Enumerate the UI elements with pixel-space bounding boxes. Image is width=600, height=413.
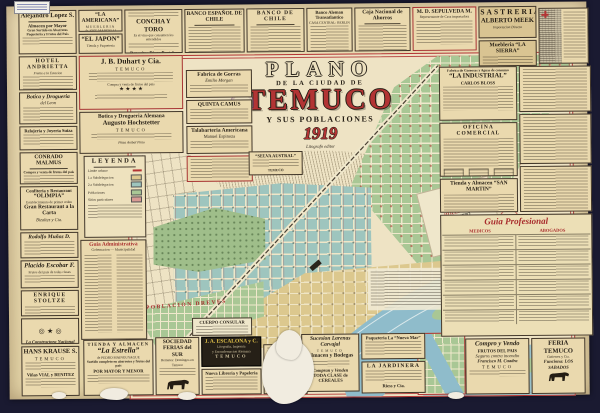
illegible-text-lines	[190, 84, 248, 93]
legend-label: Limite urbano	[88, 169, 108, 173]
illegible-text-lines	[23, 134, 73, 146]
ad-relojeria-suiza: Relojeria y Joyeria Suiza	[19, 126, 77, 151]
legend-label: Sitios particulares	[88, 198, 113, 202]
illegible-text-lines	[358, 25, 406, 51]
illegible-text-lines	[25, 362, 75, 371]
box-subtitle: Gobernacion — Municipalidad	[82, 248, 144, 253]
ad-title: Paqueteria La “Nueva Mar”	[363, 335, 423, 341]
map-title-block: PLANO DE LA CIUDAD DE TEMUCO Y SUS POBLA…	[224, 58, 417, 152]
illegible-text-lines	[253, 159, 299, 167]
ad-olimpia: Confiteria y Restaurant “OLIMPIA” Establ…	[20, 186, 78, 231]
directory-cell	[443, 279, 517, 295]
ad-line: TEMUCO	[81, 127, 181, 133]
ad-line: Frutos del pais de todas clases	[23, 270, 77, 275]
ad-hans-krause: HANS KRAUSE S. TEMUCO Viñas VIAL y BENIT…	[21, 346, 79, 397]
ad-title: ENRIQUE STOLTZE	[23, 292, 77, 305]
illegible-text-lines	[494, 168, 514, 177]
ad-title: “SELVA AUSTRAL”	[251, 153, 301, 159]
ad-sepulveda: M. D. SEPULVEDA M. Representante de Casa…	[412, 6, 476, 51]
ad-line: Funciona: LOS SABADOS	[533, 359, 583, 370]
directory-grid	[442, 233, 591, 324]
illegible-text-lines	[416, 20, 472, 44]
ad-alejandro-lopez: Alejandro Lopez S. Almacen por Mayor Gra…	[18, 10, 76, 55]
ad-line: POR MAYOR Y MENOR	[85, 368, 151, 374]
ad-banco-espanol: BANCO ESPAÑOL DE CHILE	[184, 8, 244, 53]
ad-line: Es el vino que consumen los entendidos	[127, 33, 181, 42]
illegible-text-lines	[159, 368, 195, 376]
ad-line: Compra y venta de frutos del pais	[22, 170, 76, 175]
title-subtitle: Litografo editor	[225, 143, 417, 150]
ad-concha-y-toro: CONCHA Y TORO Es el vino que consumen lo…	[124, 9, 182, 54]
ad-title2: FERIAS del SUR	[157, 345, 197, 358]
ad-oficina-comercial: OFICINA COMERCIAL	[439, 122, 517, 177]
star-row-icon: ★ ★ ★ ★	[81, 86, 181, 93]
ad-line: CASA CENTRAL: BERLIN	[308, 20, 350, 24]
sticker-text-lines	[17, 4, 47, 11]
ad-title: FERIA TEMUCO	[533, 340, 583, 356]
ad-title2: ALBERTO MEEK	[480, 17, 534, 25]
illegible-text-lines	[188, 26, 240, 53]
ad-title: SASTRERIA	[480, 8, 534, 17]
ad-title: Banco Aleman Transatlantico	[308, 10, 350, 21]
illegible-text-lines	[563, 11, 586, 59]
bull-icon	[165, 377, 191, 390]
ad-caja-nacional-ahorros: Caja Nacional de Ahorros	[354, 7, 410, 51]
illegible-text-lines	[250, 26, 300, 53]
ad-feria-temuco: FERIA TEMUCO Gutierrez y Cia. Funciona: …	[531, 337, 585, 393]
ad-quinta-camus: QUINTA CAMUS	[186, 99, 252, 124]
directory-cell	[443, 309, 517, 325]
guia-administrativa-box: Guia Administrativa Gobernacion — Munici…	[80, 239, 147, 340]
illegible-text-lines	[25, 275, 75, 283]
ad-title: Nueva Libreria y Papeleria	[203, 370, 259, 376]
ad-right-strip-2	[519, 113, 591, 164]
ad-imprenta-alemana: J. A. ESCALONA y C. Litografia, Imprenta…	[201, 336, 261, 367]
ad-rodolfo-munoz: Rodolfo Muñoz D.	[20, 232, 78, 259]
illegible-text-lines	[23, 76, 73, 90]
directory-cell	[517, 293, 591, 309]
ad-title: CONRADO MALMUS	[22, 154, 76, 167]
paper-tear	[100, 388, 128, 400]
illegible-text-lines	[84, 254, 111, 332]
cuerpo-consular-box: CUERPO CONSULAR	[192, 317, 252, 336]
legend-row: Limite urbano	[88, 169, 142, 174]
title-year: 1919	[224, 123, 416, 145]
paper-tear	[178, 392, 196, 400]
ad-line: Paqueteria y Frutos del Pais	[21, 32, 75, 37]
ad-hotel-andrietta: HOTEL ANDRIETTA Frente a la Estacion	[19, 56, 77, 91]
ad-line: TEMUCO	[203, 353, 259, 359]
red-cross-icon	[541, 11, 548, 18]
ad-la-jardinera: LA JARDINERA Riess y Cia.	[361, 361, 425, 394]
ad-title: “EL JAPON”	[81, 36, 121, 44]
ad-right-strip-3	[520, 165, 592, 212]
paper-tear	[52, 392, 66, 399]
legend-box: LEYENDA Limite urbano 1.a Subdelegacion …	[84, 155, 147, 238]
ad-la-industrial: Fabrica de Gaseosas y Aguas de consumo “…	[439, 66, 517, 121]
ad-title: Muebleria “LA SIERRA”	[481, 42, 535, 55]
ad-title: Compro y Vendo	[467, 340, 527, 348]
illegible-text-lines	[129, 43, 179, 49]
directory-cell	[516, 248, 590, 264]
illegible-text-lines	[444, 194, 514, 213]
ad-banco-aleman: Banco Aleman Transatlantico CASA CENTRAL…	[306, 8, 352, 52]
legend-row: 2.a Subdelegacion	[88, 182, 142, 188]
ad-line: Representante de Casa importadora	[414, 15, 474, 20]
legend-swatch-green	[131, 189, 142, 195]
ad-right-strip-1	[519, 65, 591, 112]
guia-profesional-box: Guia Profesional MEDICOS ABOGADOS	[440, 213, 593, 336]
ad-selva-austral: “SELVA AUSTRAL” TEMUCO	[249, 151, 303, 175]
ad-line: Frente a la Estacion	[21, 71, 75, 76]
ad-ferias-del-sur: SOCIEDAD FERIAS del SUR Remates: Domingo…	[155, 337, 200, 395]
ad-enrique-stoltze: ENRIQUE STOLTZE	[21, 290, 79, 317]
ad-title: HOTEL ANDRIETTA	[21, 58, 75, 71]
column-header-abogados: ABOGADOS	[517, 227, 589, 233]
ad-line: de JOSE MARCELLI	[80, 29, 120, 32]
ad-line: Viñas VIAL y BENITEZ	[23, 372, 77, 378]
illegible-text-lines	[95, 94, 167, 100]
illegible-text-lines	[190, 109, 248, 122]
ad-line: Manuel Espinoza	[188, 134, 250, 140]
ad-title: Relojeria y Joyeria Suiza	[21, 128, 75, 134]
ad-sastreria-meek: SASTRERIA ALBERTO MEEK Importacion Direc…	[478, 6, 536, 39]
ad-engraving	[538, 7, 588, 63]
illegible-text-lines	[88, 374, 150, 384]
ad-title: BANCO DE CHILE	[248, 10, 302, 23]
illegible-text-lines	[365, 341, 421, 355]
directory-cell	[517, 263, 591, 279]
ad-conrado-malmus: CONRADO MALMUS Compra y venta de frutos …	[20, 152, 78, 185]
illegible-text-lines	[524, 168, 588, 209]
ad-title: CONCHA Y TORO	[126, 18, 180, 34]
ad-title: “LA AMERICANA”	[80, 12, 120, 25]
illegible-text-lines	[523, 116, 587, 161]
illegible-text-lines	[25, 306, 75, 317]
directory-cell	[442, 249, 516, 265]
illegible-text-lines	[469, 168, 489, 176]
ad-line: Tienda y Paqueteria	[81, 43, 121, 47]
ad-line: Gran Restaurant a la Carta	[22, 204, 76, 217]
legend-label: 1.a Subdelegacion	[88, 175, 114, 179]
ad-title: Caja Nacional de Ahorros	[356, 9, 408, 22]
ad-la-americana: “LA AMERICANA” MUEBLERIA de JOSE MARCELL…	[78, 10, 122, 32]
illegible-text-lines	[128, 12, 178, 17]
legend-row: 1.a Subdelegacion	[88, 174, 142, 180]
illegible-text-lines	[311, 360, 349, 366]
ad-placido-escobar: Placido Escobar F. Frutos del pais de to…	[21, 260, 79, 289]
column-header-medicos: MEDICOS	[444, 228, 516, 234]
ad-title: La Constructora Nacional	[23, 339, 77, 345]
legend-row: Poblaciones	[88, 189, 142, 195]
ad-title: LA JARDINERA	[363, 363, 423, 370]
ad-title: HANS KRAUSE S.	[23, 348, 77, 356]
ad-title: Placido Escobar F.	[23, 262, 77, 270]
illegible-text-lines	[523, 68, 587, 109]
illegible-text-lines	[483, 56, 533, 67]
directory-cell	[517, 308, 591, 324]
ad-line: TEMUCO	[467, 364, 527, 370]
illegible-text-lines	[23, 107, 73, 121]
ad-fabrica-gorras: Fabrica de Gorras Emilio Morgan	[186, 69, 252, 98]
illegible-text-lines	[310, 25, 348, 51]
legend-label: 2.a Subdelegacion	[88, 183, 114, 187]
directory-cell	[443, 264, 517, 280]
ad-title: Tienda y Almacen “SAN MARTIN”	[442, 180, 516, 194]
ad-title: BANCO ESPAÑOL DE CHILE	[186, 10, 242, 23]
ad-line: TEMUCO	[81, 66, 181, 72]
ad-banco-de-chile: BANCO DE CHILE	[246, 8, 304, 53]
legend-swatch-teal	[131, 182, 142, 188]
ad-line: TEMUCO	[251, 168, 301, 173]
divider	[94, 166, 136, 167]
directory-cell	[517, 278, 591, 294]
illegible-text-lines	[116, 254, 143, 332]
ad-line: Importacion Directa	[480, 24, 534, 29]
illegible-text-lines	[206, 377, 258, 391]
illegible-text-lines	[89, 72, 173, 82]
ad-line: Emilio Morgan	[188, 78, 250, 84]
illegible-text-lines	[26, 378, 76, 387]
illegible-text-lines	[444, 169, 464, 177]
bull-icon	[546, 370, 570, 382]
ad-botica-leon: Botica y Drogueria del Leon	[19, 92, 77, 125]
ad-line: TEMUCO	[23, 356, 77, 362]
directory-cell	[443, 294, 517, 310]
illegible-text-lines	[24, 241, 74, 255]
ad-nueva-libreria: Nueva Libreria y Papeleria	[201, 368, 261, 395]
ad-line: Plaza Anibal Pinto	[81, 140, 181, 145]
ad-line: Bizaltez y Cia.	[22, 217, 76, 223]
legend-swatch-pink	[131, 197, 142, 203]
legend-label: Poblaciones	[88, 190, 105, 194]
ad-compro-y-vendo: Compro y Vendo FRUTOS DEL PAIS Seguros c…	[465, 338, 529, 395]
illegible-text-lines	[190, 140, 248, 149]
legend-swatch-red-line	[133, 170, 142, 172]
illegible-text-lines	[443, 86, 513, 111]
box-title: CUERPO CONSULAR	[194, 319, 250, 325]
paper-tear	[448, 392, 464, 399]
ad-el-japon: “EL JAPON” Tienda y Paqueteria	[79, 34, 123, 54]
illegible-text-lines	[191, 158, 249, 179]
illegible-text-lines	[196, 326, 248, 334]
illegible-text-lines	[88, 204, 142, 218]
directory-cell	[442, 234, 516, 250]
ad-line: Riess y Cia.	[364, 383, 424, 389]
title-plano: PLANO	[224, 58, 416, 81]
illegible-text-lines	[469, 370, 525, 376]
illegible-text-lines	[24, 175, 74, 184]
legend-swatch-yellow	[131, 174, 142, 180]
ad-duhart: J. B. Duhart y Cia. TEMUCO Compra y vent…	[79, 55, 183, 110]
ad-title: “LA INDUSTRIAL”	[441, 72, 515, 80]
ad-hochstetter: Botica y Drogueria Alemana Augusto Hochs…	[79, 111, 183, 154]
directory-cell	[516, 233, 590, 249]
legend-row: Sitios particulares	[88, 197, 142, 203]
engraving-caption	[561, 8, 588, 62]
legend-title: LEYENDA	[86, 157, 144, 165]
archive-sticker	[14, 1, 50, 14]
illegible-text-lines	[365, 370, 421, 382]
ad-title: Sucesion Larenas Carvajal	[303, 335, 357, 348]
ad-talabarteria-americana: Talabarteria Americana Manuel Espinoza	[186, 125, 252, 154]
ad-constructora-nacional: ◎ ★ ◎ La Constructora Nacional	[21, 318, 79, 345]
ad-small-red-frame	[187, 155, 253, 182]
scan-stage: HIJUELA 77-B del CERRO POBLACION DREVES …	[0, 0, 600, 413]
property-owner-list	[368, 268, 452, 311]
ad-nueva-mar: Paqueteria La “Nueva Mar”	[361, 333, 425, 360]
illegible-text-lines	[91, 134, 171, 141]
ad-line: CARLOS BLOSS	[441, 80, 515, 86]
ad-title: Rodolfo Muñoz D.	[22, 234, 76, 241]
ad-la-sierra: Muebleria “LA SIERRA”	[479, 40, 537, 67]
ad-line: Remates: Domingos en Temuco	[157, 358, 197, 367]
illegible-text-lines	[443, 138, 513, 167]
illegible-text-lines	[371, 271, 449, 308]
illegible-text-lines	[23, 37, 73, 44]
box-title: Guia Profesional	[442, 215, 590, 227]
ad-san-martin: Tienda y Almacen “SAN MARTIN”	[440, 178, 518, 213]
ad-title: OFICINA COMERCIAL	[441, 124, 515, 138]
paper-tear	[276, 330, 302, 360]
ad-line: Deposito: Diego Portales 665	[127, 50, 181, 54]
engraved-illustration	[539, 9, 561, 63]
ad-line: del Leon	[21, 100, 75, 106]
wheel-star-logo-icon: ◎ ★ ◎	[39, 327, 62, 335]
ad-title: QUINTA CAMUS	[188, 101, 250, 108]
